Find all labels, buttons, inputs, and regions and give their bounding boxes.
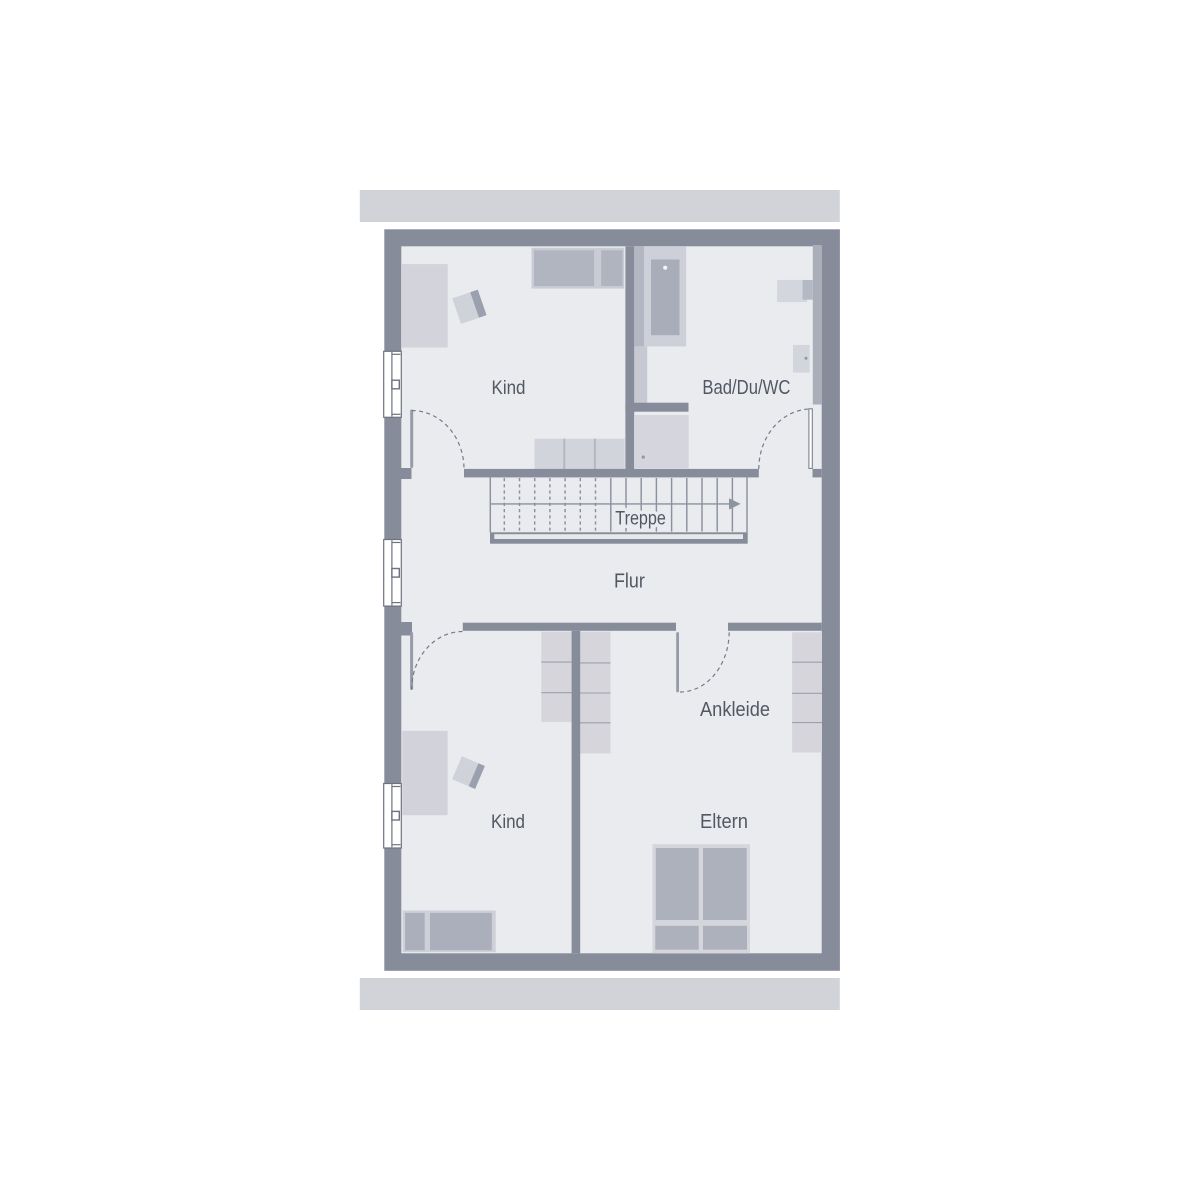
svg-text:Ankleide: Ankleide [700,699,770,721]
svg-text:Flur: Flur [614,571,645,593]
svg-text:Eltern: Eltern [700,811,748,833]
svg-text:Bad/Du/WC: Bad/Du/WC [702,376,790,399]
svg-text:Kind: Kind [491,811,525,833]
svg-text:Kind: Kind [492,377,526,399]
svg-text:Treppe: Treppe [615,509,666,530]
